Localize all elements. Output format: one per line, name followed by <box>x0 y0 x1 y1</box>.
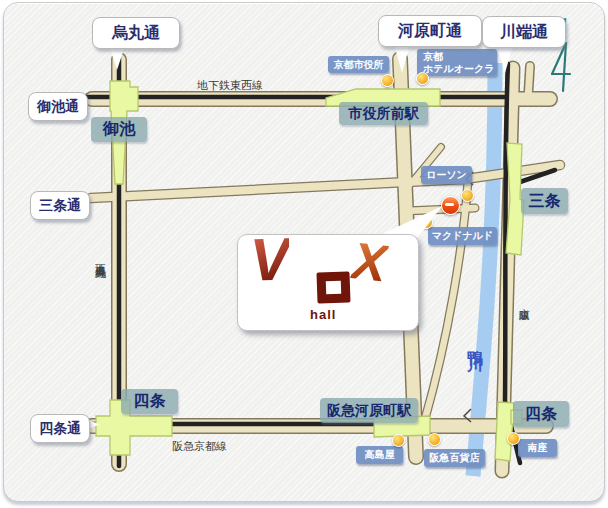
poi-dot-hankyu-dept <box>428 433 441 446</box>
compass-arrow-icon <box>552 43 570 91</box>
venue-marker-highlight <box>445 203 454 206</box>
balloon-oike-dori: 御池通 <box>28 92 88 121</box>
hankyu-kyoto-line-label: 阪急京都線 <box>172 439 227 454</box>
poi-dot-hotel-okura <box>416 72 429 85</box>
side-street-north-stub <box>528 66 530 99</box>
hotel-okura-line1: 京都 <box>423 51 497 63</box>
balloon-shijo-dori: 四条通 <box>30 414 90 443</box>
balloon-kawaramachi-dori: 河原町通 <box>378 15 482 47</box>
landmark-label-city-hall: 京都市役所 <box>328 56 389 73</box>
station-label-hankyu-kawaramachi: 阪急河原町駅 <box>320 398 418 423</box>
kamo-river <box>473 63 495 476</box>
station-label-shiyakushomae: 市役所前駅 <box>339 102 428 125</box>
karasuma-subway-line-label: 地下鉄烏丸線 <box>94 255 108 261</box>
balloon-karasuma-dori: 烏丸通 <box>92 17 180 49</box>
landmark-label-lawson: ローソン <box>421 166 472 184</box>
vox-logo-letter-o-icon <box>316 271 350 303</box>
poi-dot-lawson <box>461 189 474 202</box>
vox-logo-hall-text: hall <box>310 307 336 322</box>
keihan-line-label: 京阪線 <box>518 300 532 303</box>
balloon-sanjo-dori: 三条通 <box>30 191 90 220</box>
map-panel: N 地下鉄東西線 阪急京都線 地下鉄烏丸線 京阪線 鴨川 烏丸通 河原町通 川端… <box>3 2 605 502</box>
landmark-label-takashimaya: 高島屋 <box>356 446 403 464</box>
landmark-label-minamiza: 南座 <box>518 439 557 457</box>
landmark-label-hankyu-dept: 阪急百貨店 <box>424 449 485 467</box>
venue-balloon: V X hall <box>237 234 419 331</box>
landmark-label-mcdonalds: マクドナルド <box>428 227 497 245</box>
poi-dot-takashimaya <box>392 434 405 447</box>
station-label-sanjo: 三条 <box>521 188 568 214</box>
vox-logo-letter-v: V <box>249 226 291 293</box>
kamo-river-label: 鴨川 <box>464 337 485 349</box>
vox-logo-letter-x: X <box>349 232 389 293</box>
balloon-kawabata-dori: 川端通 <box>482 16 566 48</box>
landmark-label-hotel-okura: 京都 ホテルオークラ <box>417 49 497 76</box>
poi-dot-city-hall <box>381 74 394 87</box>
tozai-line-label: 地下鉄東西線 <box>197 78 263 93</box>
poi-dot-minamiza <box>507 432 520 445</box>
hotel-okura-line2: ホテルオークラ <box>423 63 497 75</box>
station-label-shijo-karasuma: 四条 <box>121 389 178 414</box>
station-label-shijo-keihan: 四条 <box>513 401 569 427</box>
station-label-oike: 御池 <box>91 117 147 142</box>
venue-location-marker <box>441 196 460 215</box>
vox-hall-access-map: N 地下鉄東西線 阪急京都線 地下鉄烏丸線 京阪線 鴨川 烏丸通 河原町通 川端… <box>0 0 608 508</box>
